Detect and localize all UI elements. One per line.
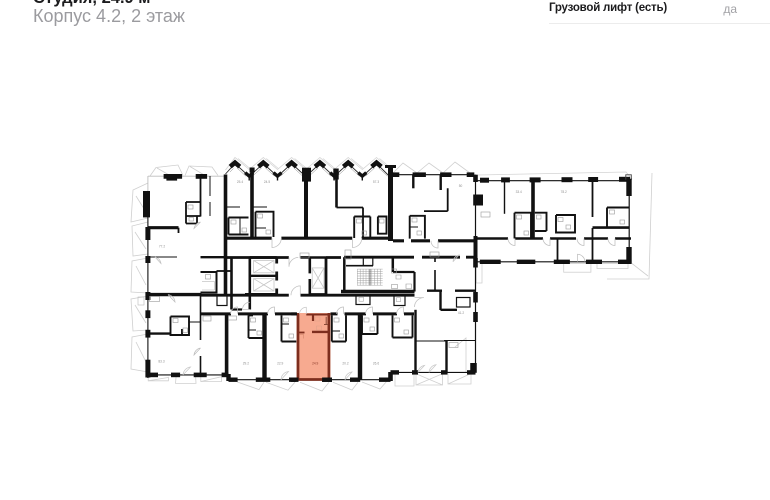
svg-text:83.3: 83.3 bbox=[158, 360, 164, 364]
svg-text:26.6: 26.6 bbox=[373, 362, 379, 366]
svg-text:24.5: 24.5 bbox=[264, 180, 270, 184]
svg-text:77.2: 77.2 bbox=[159, 245, 165, 249]
svg-text:22.9: 22.9 bbox=[277, 362, 283, 366]
svg-text:33.4: 33.4 bbox=[516, 190, 522, 194]
svg-text:57.3: 57.3 bbox=[373, 180, 379, 184]
svg-text:29.2: 29.2 bbox=[243, 362, 249, 366]
svg-text:78.2: 78.2 bbox=[561, 190, 567, 194]
svg-text:50: 50 bbox=[459, 184, 463, 188]
svg-text:25.4: 25.4 bbox=[237, 180, 243, 184]
svg-text:24.9: 24.9 bbox=[312, 362, 318, 366]
svg-text:41.2: 41.2 bbox=[458, 311, 464, 315]
svg-text:20.2: 20.2 bbox=[342, 362, 348, 366]
